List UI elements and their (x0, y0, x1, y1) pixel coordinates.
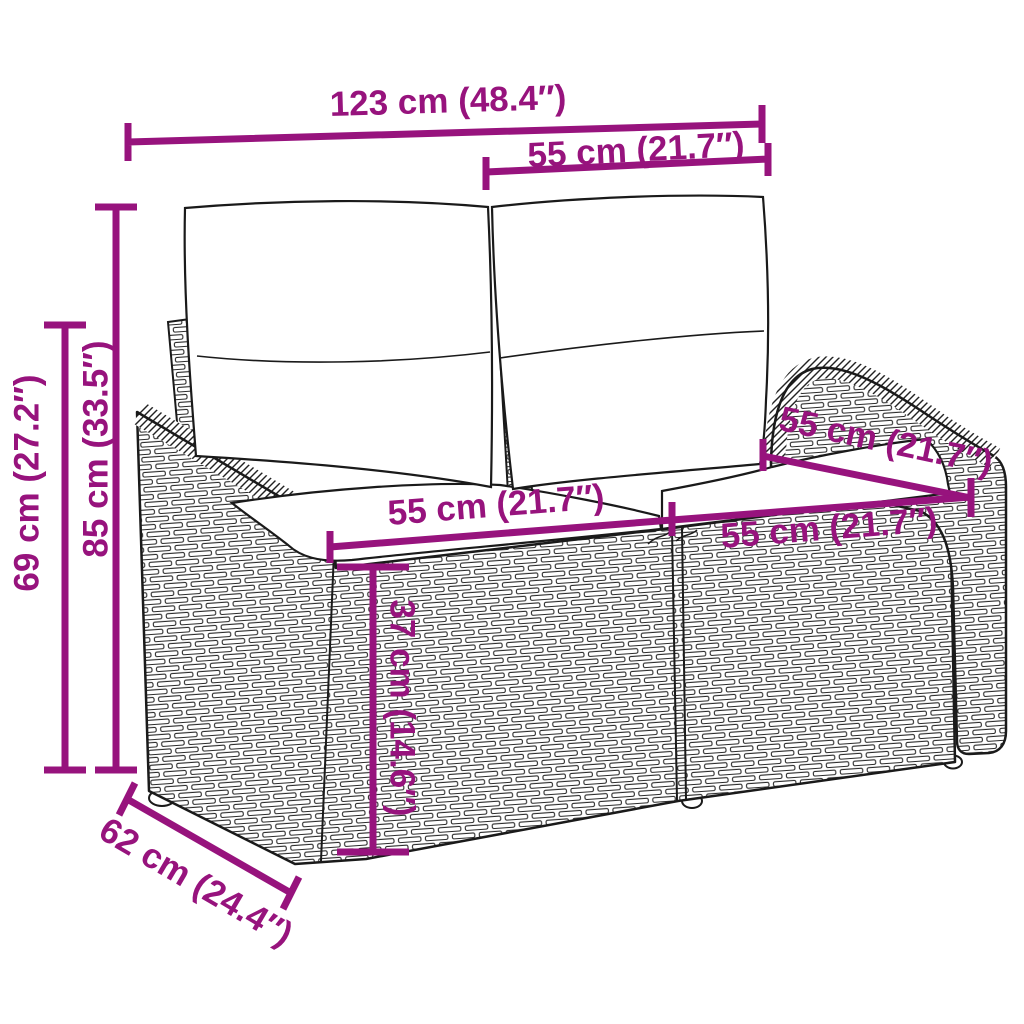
dim-label-arm-height: 69 cm (27.2″) (8, 374, 47, 591)
right-back-cushion (492, 196, 768, 489)
dim-label-overall-width: 123 cm (48.4″) (329, 78, 567, 124)
dim-label-total-height: 85 cm (33.5″) (77, 340, 116, 557)
left-back-cushion (185, 201, 492, 487)
dim-label-seat-height: 37 cm (14.6″) (383, 599, 422, 816)
product-dimension-image: 123 cm (48.4″) 55 cm (21.7″) 85 cm (33.5… (0, 0, 1024, 1024)
product-image-canvas: 123 cm (48.4″) 55 cm (21.7″) 85 cm (33.5… (0, 0, 1024, 1024)
